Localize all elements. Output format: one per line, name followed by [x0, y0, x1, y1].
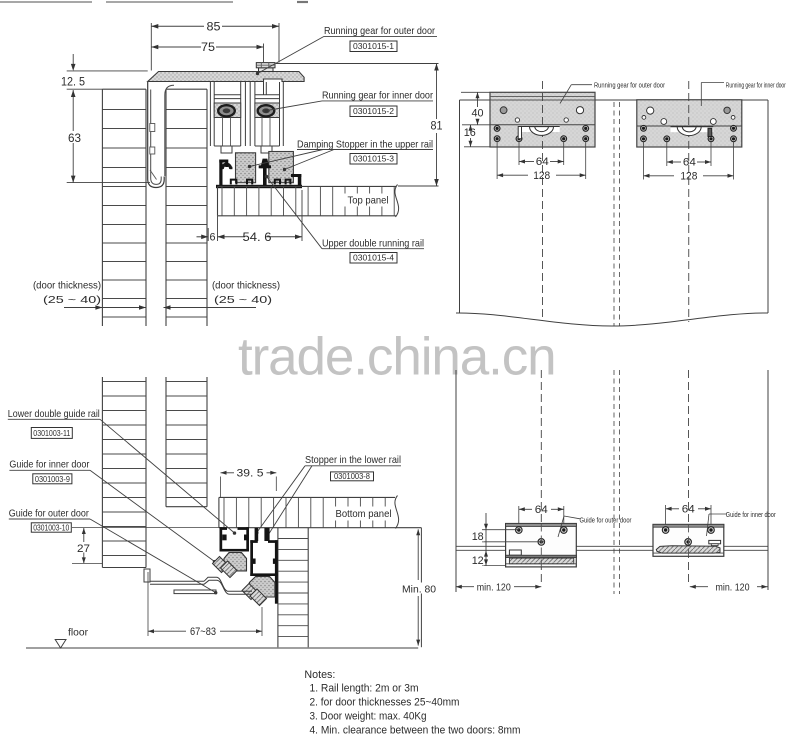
svg-text:16: 16 — [464, 127, 476, 139]
svg-text:0301015-3: 0301015-3 — [353, 154, 394, 164]
svg-text:(door thickness): (door thickness) — [33, 281, 101, 292]
svg-text:128: 128 — [533, 170, 550, 182]
svg-text:floor: floor — [68, 627, 89, 638]
svg-text:6: 6 — [210, 232, 216, 244]
svg-text:0301003-10: 0301003-10 — [33, 522, 69, 532]
svg-text:Top panel: Top panel — [348, 195, 389, 206]
svg-text:75: 75 — [201, 42, 215, 54]
svg-text:Guide for outer door: Guide for outer door — [9, 508, 89, 519]
svg-text:12. 5: 12. 5 — [61, 77, 85, 89]
svg-text:4. Min. clearance between the: 4. Min. clearance between the two doors:… — [310, 724, 521, 736]
svg-text:2. for door thicknesses 25~40m: 2. for door thicknesses 25~40mm — [310, 696, 460, 708]
svg-text:64: 64 — [536, 156, 549, 168]
svg-text:64: 64 — [682, 503, 695, 515]
svg-text:3. Door weight: max. 40Kg: 3. Door weight: max. 40Kg — [310, 710, 427, 722]
svg-text:54. 6: 54. 6 — [243, 232, 272, 244]
svg-text:18: 18 — [472, 531, 484, 543]
svg-text:(25 ~ 40): (25 ~ 40) — [214, 295, 272, 306]
svg-text:1. Rail length: 2m or 3m: 1. Rail length: 2m or 3m — [310, 682, 419, 694]
svg-text:(25 ~ 40): (25 ~ 40) — [43, 295, 101, 306]
svg-text:trade.china.cn: trade.china.cn — [238, 328, 556, 387]
svg-text:Stopper in the lower rail: Stopper in the lower rail — [305, 455, 401, 466]
svg-text:67~83: 67~83 — [190, 626, 216, 638]
svg-text:Running gear for inner door: Running gear for inner door — [726, 83, 786, 90]
svg-text:Upper double running rail: Upper double running rail — [322, 239, 424, 250]
svg-text:Running gear for inner door: Running gear for inner door — [322, 91, 433, 102]
svg-text:Guide for inner door: Guide for inner door — [9, 459, 89, 470]
svg-text:Damping Stopper in the upper r: Damping Stopper in the upper rail — [297, 139, 433, 150]
svg-text:0301003-9: 0301003-9 — [35, 474, 70, 484]
svg-text:0301003-11: 0301003-11 — [33, 428, 70, 438]
svg-text:39. 5: 39. 5 — [237, 468, 264, 480]
svg-text:0301015-1: 0301015-1 — [353, 41, 394, 51]
svg-text:0301015-4: 0301015-4 — [353, 253, 394, 263]
svg-text:Guide for outer door: Guide for outer door — [580, 517, 633, 524]
svg-text:0301003-8: 0301003-8 — [334, 471, 370, 481]
svg-text:40: 40 — [472, 108, 484, 120]
svg-text:128: 128 — [680, 171, 697, 183]
svg-text:Guide for inner door: Guide for inner door — [726, 512, 777, 519]
svg-text:Notes:: Notes: — [304, 669, 335, 681]
svg-text:min. 120: min. 120 — [716, 582, 750, 594]
svg-text:63: 63 — [68, 133, 81, 145]
svg-text:64: 64 — [683, 157, 696, 169]
svg-text:Running gear for outer door: Running gear for outer door — [594, 83, 666, 90]
svg-text:85: 85 — [207, 21, 221, 33]
svg-text:min. 120: min. 120 — [477, 582, 511, 594]
svg-text:81: 81 — [431, 121, 443, 133]
svg-text:(door thickness): (door thickness) — [212, 281, 280, 292]
svg-text:27: 27 — [77, 543, 90, 555]
svg-text:Running gear for outer door: Running gear for outer door — [324, 26, 435, 37]
svg-text:0301015-2: 0301015-2 — [353, 106, 394, 116]
svg-text:Lower double guide rail: Lower double guide rail — [8, 409, 100, 420]
svg-text:12: 12 — [472, 555, 484, 567]
svg-text:64: 64 — [535, 504, 548, 516]
svg-text:Min. 80: Min. 80 — [402, 583, 436, 595]
svg-text:Bottom panel: Bottom panel — [336, 509, 392, 520]
